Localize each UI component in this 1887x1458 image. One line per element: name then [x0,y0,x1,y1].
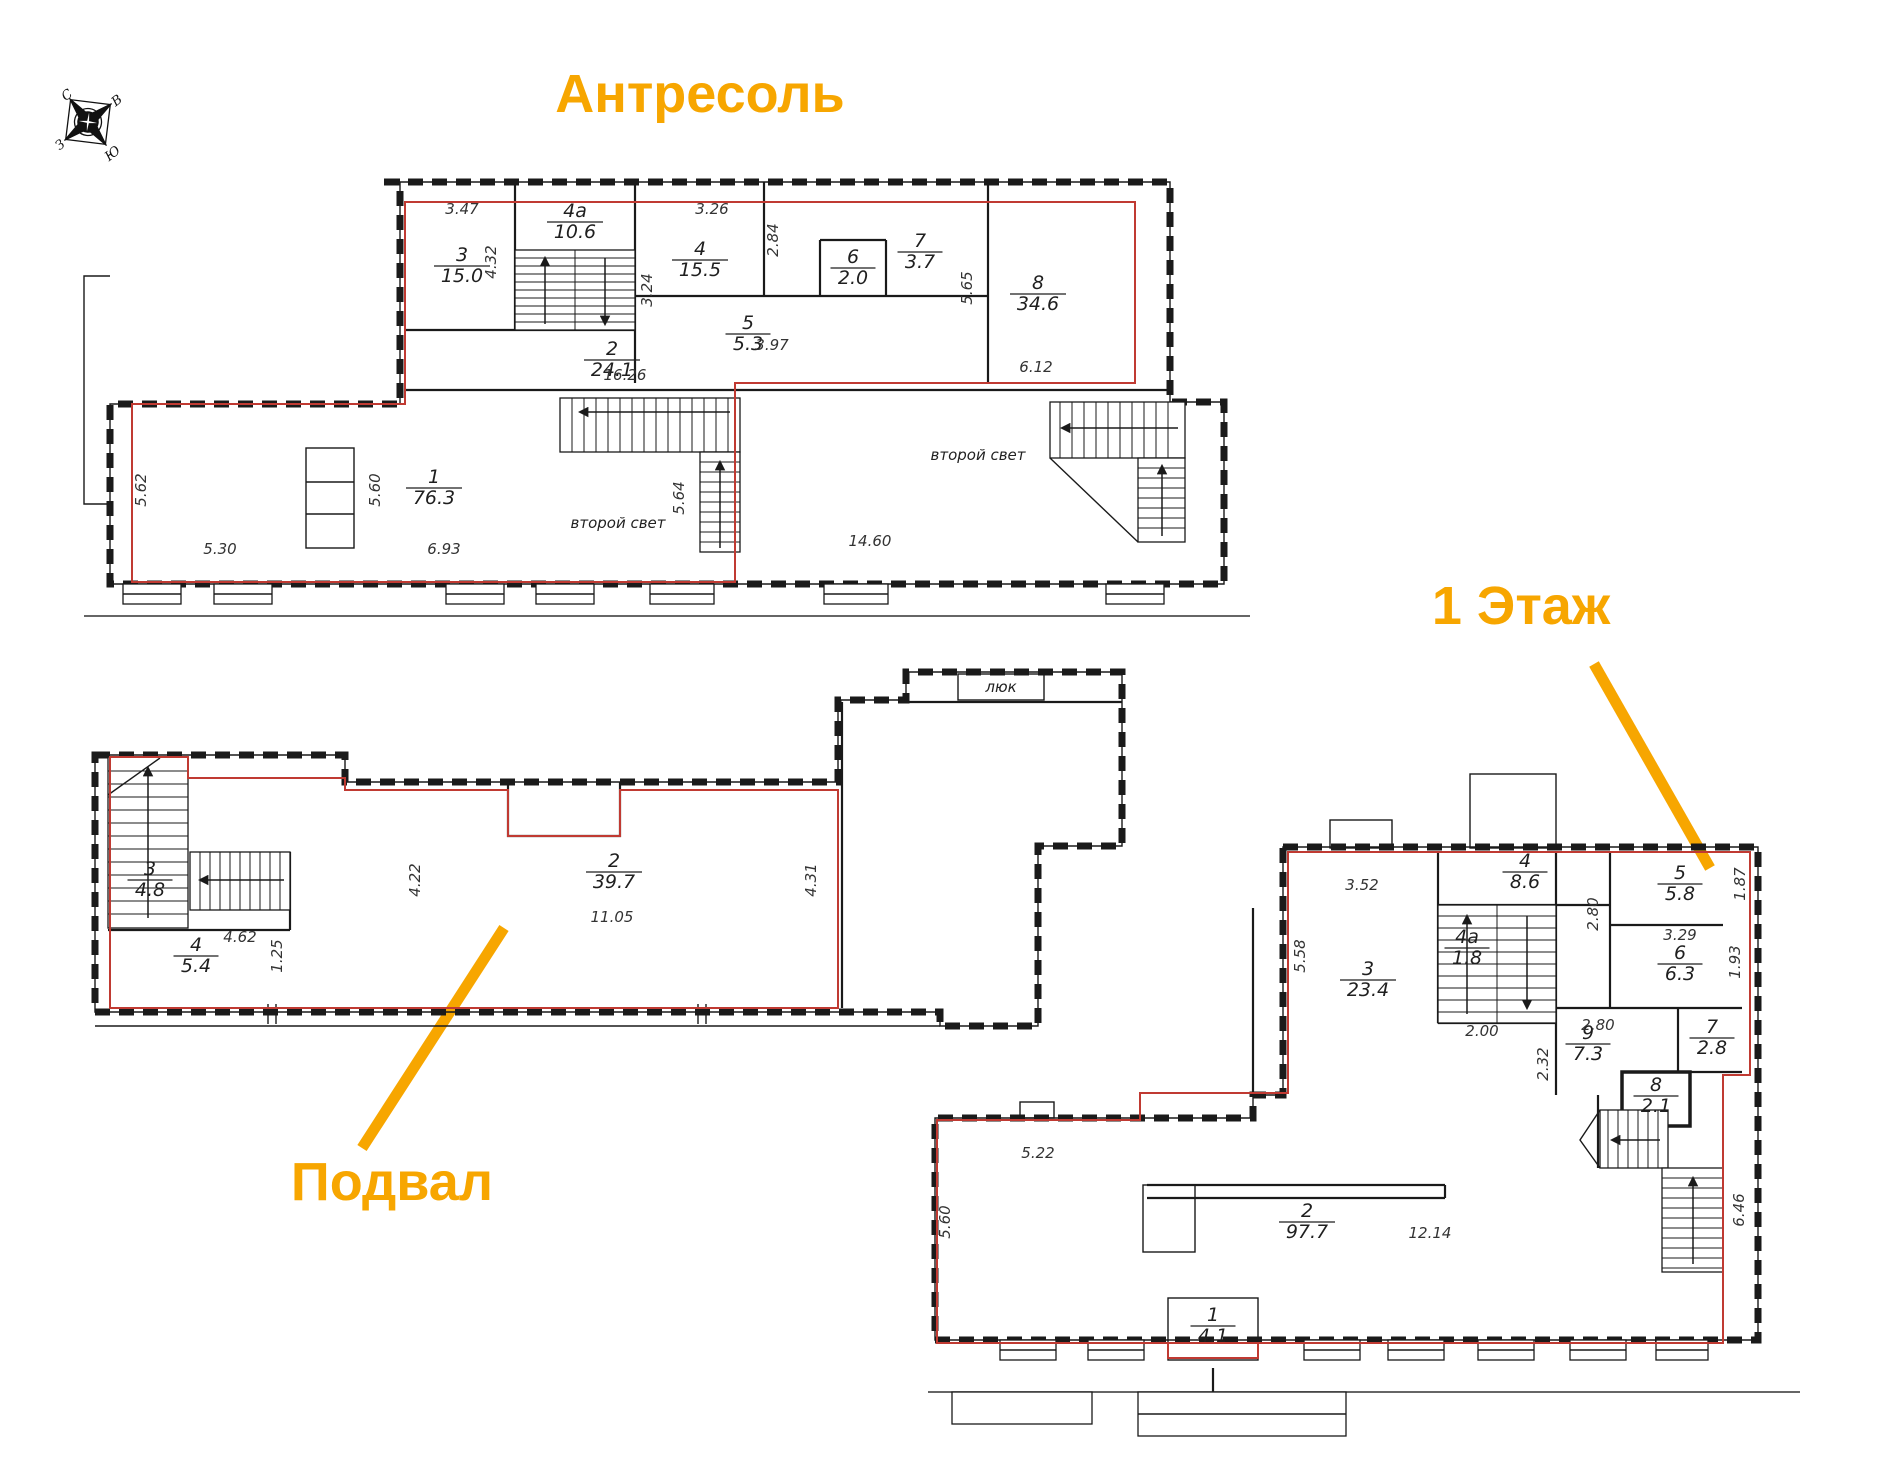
room-label: 323.4 [1340,958,1396,1001]
room-area: 5.8 [1665,883,1695,905]
dimension-label: 1.93 [1726,945,1744,978]
dimension-label: 6.12 [1019,358,1052,376]
dimension-label: 5.30 [203,540,236,558]
room-label: 73.7 [898,230,943,273]
room-number: 4 [190,934,202,956]
column-outline [306,448,354,548]
column-lines [306,482,354,514]
mezzanine-left-wall-stub [84,276,110,504]
room-area: 2.1 [1641,1095,1671,1117]
room-label: 72.8 [1690,1016,1735,1059]
title-basement: Подвал [291,1152,493,1212]
room-area: 23.4 [1347,979,1389,1001]
compass-rose-icon: С В Ю З [31,65,149,185]
stair-run-horizontal [1050,402,1185,458]
dimension-label: 16.26 [604,366,647,384]
basement-outer-wall [95,672,1122,1026]
room-area: 1.8 [1452,947,1482,969]
room-number: 4а [1455,926,1479,948]
dimension-label: 5.22 [1021,1144,1054,1162]
dimension-label: 2.32 [1534,1047,1552,1080]
room-label: 62.0 [831,246,876,289]
bay-structure [1470,774,1556,848]
room-number: 8 [1032,272,1044,294]
floor-plan-canvas: С В Ю З Антресоль 1 Этаж Подвал [0,0,1887,1458]
dimension-label: 6.93 [427,540,460,558]
room-number: 4 [694,238,706,260]
dimension-label: 2.84 [764,223,782,256]
room-label: 297.7 [1279,1200,1335,1243]
dimension-label: 2.80 [1584,897,1602,930]
room-number: 6 [1674,942,1686,964]
dimension-label: 5.60 [936,1205,954,1238]
compass-south-label: Ю [101,143,124,165]
room-number: 5 [1674,862,1686,884]
room-number: 4а [563,200,587,222]
basement-labels: 34.845.4239.74.621.254.2211.054.31люк [128,678,1017,977]
first-floor-outer-wall-line [935,847,1758,1340]
room-label: 82.1 [1634,1074,1679,1117]
room-number: 1 [428,466,440,488]
dimension-label: 3.52 [1345,876,1378,894]
room-area: 7.3 [1573,1043,1603,1065]
dimension-label: 5.60 [366,473,384,506]
dimension-label: 3.26 [695,200,728,218]
room-area: 2.8 [1697,1037,1727,1059]
room-number: 8 [1650,1074,1662,1096]
dimension-label: 5.65 [958,271,976,304]
room-number: 3 [144,858,156,880]
mezzanine-plan: 315.04а10.6415.555.362.073.7834.6224.117… [84,182,1250,616]
room-area: 6.3 [1665,963,1695,985]
first-floor-plan: 323.44а1.848.655.866.397.372.882.1297.71… [928,774,1800,1436]
room-label: 239.7 [586,850,642,893]
dimension-label: 2.80 [1581,1016,1614,1034]
room-label: 45.4 [174,934,219,977]
room-number: 6 [847,246,859,268]
compass-diamond [66,100,111,145]
room-label: 4а10.6 [547,200,603,243]
title-mezzanine: Антресоль [555,64,845,124]
room-area: 2.0 [838,267,868,289]
dimension-label: 11.05 [591,908,634,926]
room-number: 3 [456,244,468,266]
dimension-label: 3.97 [755,336,789,354]
room-label: 48.6 [1503,850,1548,893]
room-area: 15.5 [679,259,721,281]
room-number: 3 [1362,958,1374,980]
room-label: 66.3 [1658,942,1703,985]
room-area: 97.7 [1286,1221,1328,1243]
entrance-porch [952,1392,1092,1424]
room-number: 4 [1519,850,1531,872]
pointer-line-basement [362,928,504,1148]
basement-stairs [108,757,290,928]
landing-edge [1050,458,1138,542]
pointer-line-first-floor [1594,664,1710,868]
room-label: 415.5 [672,238,728,281]
room-area: 4.8 [135,879,165,901]
mezzanine-stairs-main [515,250,635,330]
mezzanine-stairs-lightwell [1050,402,1185,542]
room-area: 15.0 [441,265,483,287]
dimension-label: 4.22 [406,863,424,896]
room-area: 5.4 [181,955,211,977]
dimension-label: 1.87 [1731,867,1749,901]
note-label: второй свет [930,446,1026,464]
dimension-label: 3.24 [638,273,656,306]
dimension-label: 4.62 [223,928,256,946]
room-area: 34.6 [1017,293,1059,315]
title-first-floor: 1 Этаж [1432,576,1611,636]
room-label: 834.6 [1010,272,1066,315]
counter-block [1143,1185,1195,1252]
room-number: 7 [914,230,926,252]
dimension-label: 3.47 [445,200,479,218]
note-label: второй свет [570,514,666,532]
room-number: 2 [1301,1200,1313,1222]
first-floor-stairs-right [1580,1110,1723,1272]
room-area: 8.6 [1510,871,1540,893]
room-number: 2 [606,338,618,360]
dimension-label: 6.46 [1730,1193,1748,1226]
room-area: 39.7 [593,871,635,893]
room-label: 176.3 [406,466,462,509]
room-number: 5 [742,312,754,334]
dimension-label: 5.62 [132,473,150,506]
room-label: 55.8 [1658,862,1703,905]
room-number: 1 [1207,1304,1219,1326]
dimension-label: 5.58 [1291,939,1309,972]
basement-plan: 34.845.4239.74.621.254.2211.054.31люк [95,672,1122,1026]
mezzanine-column [306,448,354,548]
dimension-label: 2.00 [1465,1022,1498,1040]
dimension-label: 12.14 [1409,1224,1452,1242]
room-area: 3.7 [905,251,935,273]
room-number: 7 [1706,1016,1718,1038]
note-label: люк [984,678,1016,696]
dimension-label: 4.32 [482,245,500,278]
dimension-label: 4.31 [802,863,820,896]
room-area: 76.3 [413,487,455,509]
stair-run-horizontal [560,398,740,452]
dimension-label: 3.29 [1663,926,1696,944]
room-area: 4.1 [1198,1325,1228,1347]
dimension-label: 14.60 [849,532,892,550]
dimension-label: 1.25 [268,939,286,972]
first-floor-outer-wall [935,847,1758,1340]
room-number: 2 [608,850,620,872]
compass-east-label: В [108,92,126,110]
basement-outer-wall-line [95,672,1122,1026]
dimension-label: 5.64 [670,481,688,514]
room-area: 10.6 [554,221,596,243]
